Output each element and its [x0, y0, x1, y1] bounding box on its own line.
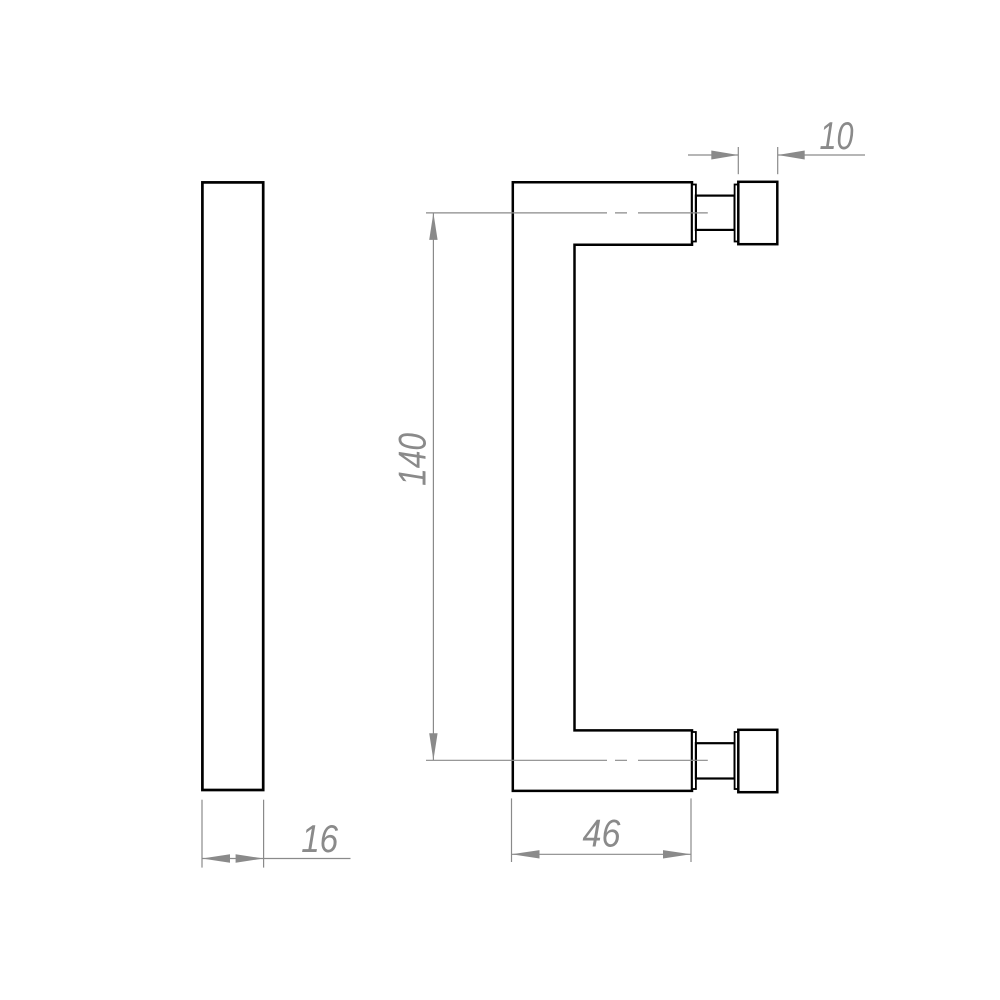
svg-text:46: 46: [583, 813, 621, 856]
svg-text:140: 140: [392, 433, 435, 486]
svg-text:16: 16: [301, 818, 338, 861]
svg-text:10: 10: [820, 115, 854, 158]
